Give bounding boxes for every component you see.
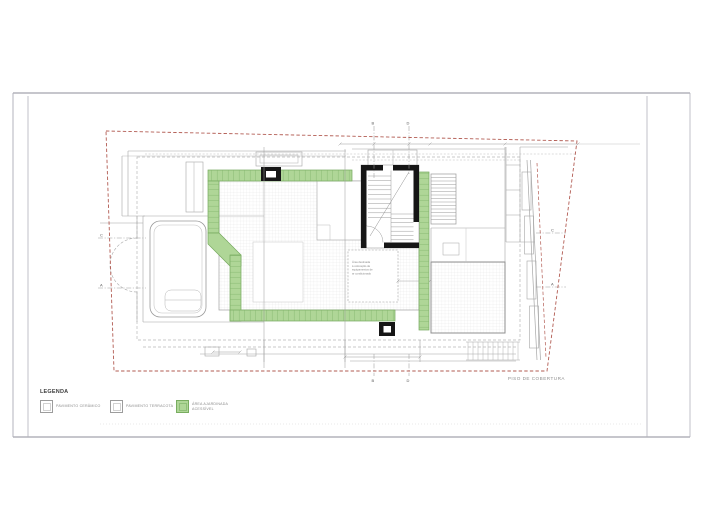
swatch-inner: [43, 403, 51, 411]
floor-plan-svg: Área destinada à colocação de equipament…: [0, 0, 705, 528]
swatch-inner: [179, 403, 187, 411]
annotation-box: [348, 250, 398, 302]
section-marker-top-d: D: [407, 121, 410, 126]
pool: [150, 221, 206, 317]
right-terrace: [431, 228, 505, 333]
legend-label: PAVIMENTO TERRACOTA: [126, 404, 173, 413]
svg-text:Área destinada: Área destinada: [352, 260, 371, 264]
section-marker-bottom-d: D: [407, 378, 410, 383]
pergola-stairs: [431, 174, 456, 224]
svg-text:equipamentos de: equipamentos de: [352, 268, 373, 272]
legend-label: ÁREA AJARDINADA ACESSÍVEL: [192, 402, 228, 413]
section-marker-left-a: A: [100, 283, 103, 288]
garden-niche: [110, 238, 137, 292]
exterior-steps: [468, 342, 518, 360]
legend-swatch-area-ajardinada: [176, 400, 189, 413]
legend-item-pavimento-terracota: PAVIMENTO TERRACOTA: [110, 400, 173, 413]
section-marker-left-c: C: [100, 233, 103, 238]
section-marker-right-a: A: [551, 282, 554, 287]
legend-item-pavimento-ceramico: PAVIMENTO CERÂMICO: [40, 400, 101, 413]
legend-label: PAVIMENTO CERÂMICO: [56, 404, 101, 413]
legend: LEGENDA PAVIMENTO CERÂMICO PAVIMENTO TER…: [40, 389, 320, 420]
svg-text:ar condicionado: ar condicionado: [352, 271, 371, 275]
legend-swatch-pavimento-terracota: [110, 400, 123, 413]
legend-swatch-pavimento-ceramico: [40, 400, 53, 413]
drawing-sheet: Área destinada à colocação de equipament…: [0, 0, 705, 528]
stair-core: [361, 165, 419, 248]
drawing-title: PISO DE COBERTURA: [460, 376, 565, 381]
section-marker-top-b: B: [372, 121, 375, 126]
annotation-text: Área destinada à colocação de equipament…: [352, 260, 373, 275]
section-marker-right-c: C: [551, 228, 554, 233]
legend-items: PAVIMENTO CERÂMICO PAVIMENTO TERRACOTA Á…: [40, 400, 320, 420]
section-marker-bottom-b: B: [372, 378, 375, 383]
legend-title: LEGENDA: [40, 389, 320, 395]
legend-item-area-ajardinada: ÁREA AJARDINADA ACESSÍVEL: [176, 400, 228, 413]
swatch-inner: [113, 403, 121, 411]
svg-text:à colocação de: à colocação de: [352, 264, 371, 268]
